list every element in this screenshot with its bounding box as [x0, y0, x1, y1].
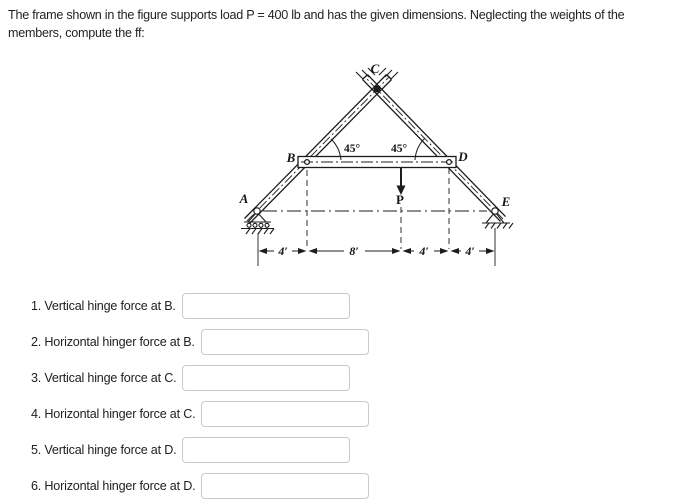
load-arrow-icon: [397, 168, 406, 195]
answer-input-2[interactable]: [201, 329, 369, 355]
question-label-6: 6. Horizontal hinger force at D.: [31, 479, 195, 493]
question-label-3: 3. Vertical hinge force at C.: [31, 371, 176, 385]
answer-input-3[interactable]: [182, 365, 350, 391]
pin-d-icon: [447, 160, 452, 165]
angle-label-left: 45°: [344, 143, 361, 155]
dim-label-4: 4′: [464, 244, 474, 258]
question-label-1: 1. Vertical hinge force at B.: [31, 299, 176, 313]
answer-input-4[interactable]: [201, 401, 369, 427]
question-row-1: 1. Vertical hinge force at B.: [31, 292, 350, 320]
label-b: B: [286, 150, 296, 165]
bar-bd: [298, 157, 456, 168]
label-a: A: [239, 191, 249, 206]
pin-c-icon: [374, 86, 380, 92]
answer-input-5[interactable]: [182, 437, 350, 463]
support-a-roller-icon: [241, 208, 274, 234]
question-label-5: 5. Vertical hinge force at D.: [31, 443, 176, 457]
answer-input-1[interactable]: [182, 293, 350, 319]
member-ac: [245, 75, 392, 224]
question-row-2: 2. Horizontal hinger force at B.: [31, 328, 369, 356]
dimension-line: [259, 248, 495, 254]
label-e: E: [501, 194, 511, 209]
question-label-4: 4. Horizontal hinger force at C.: [31, 407, 195, 421]
member-ec: [363, 75, 506, 222]
load-label: P: [396, 192, 404, 207]
question-row-3: 3. Vertical hinge force at C.: [31, 364, 350, 392]
angle-label-right: 45°: [391, 143, 408, 155]
question-row-4: 4. Horizontal hinger force at C.: [31, 400, 369, 428]
dim-label-3: 4′: [418, 244, 428, 258]
answer-input-6[interactable]: [201, 473, 369, 499]
label-d: D: [457, 149, 468, 164]
label-c: C: [371, 61, 380, 76]
dim-label-2: 8′: [349, 244, 358, 258]
dim-label-1: 4′: [277, 244, 287, 258]
question-label-2: 2. Horizontal hinger force at B.: [31, 335, 195, 349]
frame-figure: A B C D E 45° 45° P 4′ 8′ 4′ 4′: [0, 0, 695, 295]
question-row-5: 5. Vertical hinge force at D.: [31, 436, 350, 464]
pin-b-icon: [305, 160, 310, 165]
question-row-6: 6. Horizontal hinger force at D.: [31, 472, 369, 500]
frame-figure-svg: A B C D E 45° 45° P 4′ 8′ 4′ 4′: [0, 0, 695, 290]
